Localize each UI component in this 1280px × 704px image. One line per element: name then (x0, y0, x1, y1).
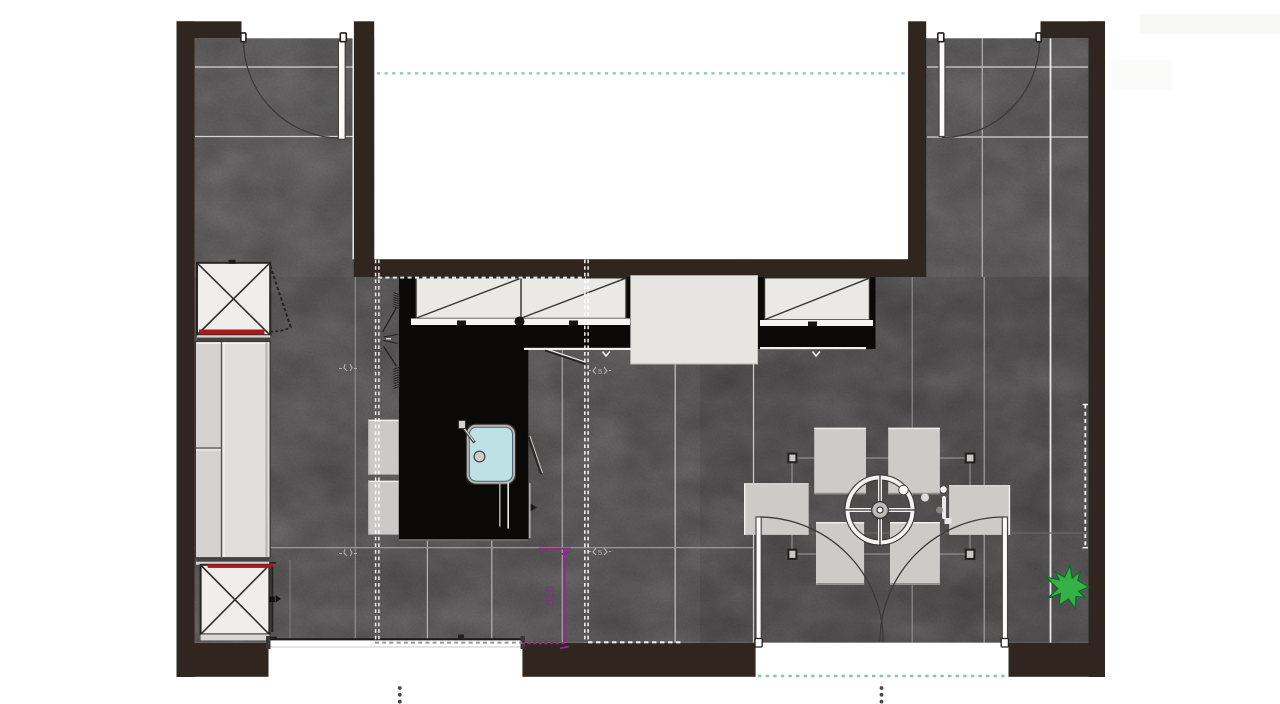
svg-text:610: 610 (543, 586, 557, 606)
svg-text:5: 5 (598, 367, 602, 376)
svg-text:5: 5 (598, 548, 602, 557)
